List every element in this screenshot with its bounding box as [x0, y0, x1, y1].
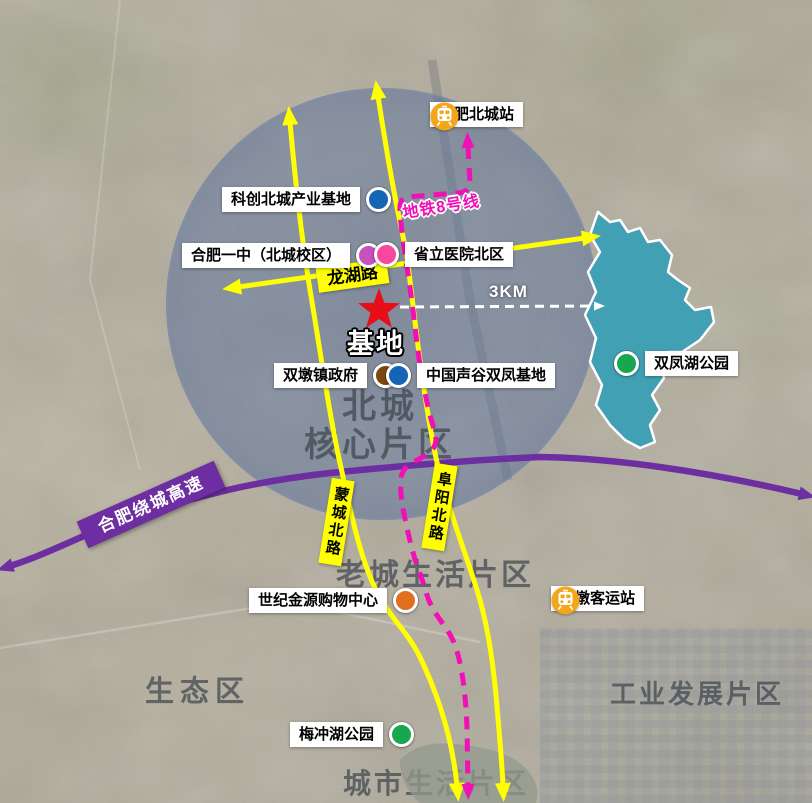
poi-label: 科创北城产业基地 — [222, 187, 360, 212]
poi-dot — [614, 351, 639, 376]
ring-expressway-label: 合肥绕城高速 — [77, 461, 226, 549]
poi-label: 世纪金源购物中心 — [249, 588, 387, 613]
poi-dot — [393, 588, 418, 613]
poi-shuangdun-government: 双墩镇政府 — [274, 363, 398, 388]
train-station-icon — [551, 586, 580, 615]
poi-dot — [386, 363, 411, 388]
poi-meichong-lake-park: 梅冲湖公园 — [290, 722, 414, 747]
poi-provincial-hospital-north: 省立医院北区 — [374, 242, 513, 267]
station-hefei-north: 合肥北城站 — [430, 102, 523, 127]
poi-label: 双墩镇政府 — [274, 363, 367, 388]
poi-shuangfeng-lake-park: 双凤湖公园 — [614, 351, 738, 376]
metro-line8-label: 地铁8号线 — [401, 187, 482, 223]
poi-dot — [389, 722, 414, 747]
site-label: 基地 — [347, 322, 405, 361]
poi-kechuang-base: 科创北城产业基地 — [222, 187, 391, 212]
poi-label: 合肥一中（北城校区） — [182, 243, 350, 268]
poi-label: 省立医院北区 — [405, 242, 513, 267]
poi-shiji-jinyuan-mall: 世纪金源购物中心 — [249, 588, 418, 613]
poi-dot — [374, 242, 399, 267]
poi-hefei-no1-school: 合肥一中（北城校区） — [182, 243, 381, 268]
train-station-icon — [430, 102, 459, 131]
poi-label: 双凤湖公园 — [645, 351, 738, 376]
poi-label: 梅冲湖公园 — [290, 722, 383, 747]
mengcheng-road-label: 蒙城北路 — [318, 478, 354, 567]
scale-3km-label: 3KM — [489, 282, 528, 302]
poi-label: 中国声谷双凤基地 — [417, 363, 555, 388]
site-location-map: 北城 核心片区 老城生活片区 生态区 工业发展片区 城市生活片区 — [0, 0, 812, 803]
poi-dot — [366, 187, 391, 212]
poi-china-sound-valley: 中国声谷双凤基地 — [386, 363, 555, 388]
map-labels: 基地 3KM 地铁8号线 龙湖路 蒙城北路 阜阳北路 合肥绕城高速 合肥北城站 — [0, 0, 812, 803]
fuyang-road-label: 阜阳北路 — [421, 463, 457, 552]
station-shuangdun-passenger: 双墩客运站 — [551, 586, 644, 611]
